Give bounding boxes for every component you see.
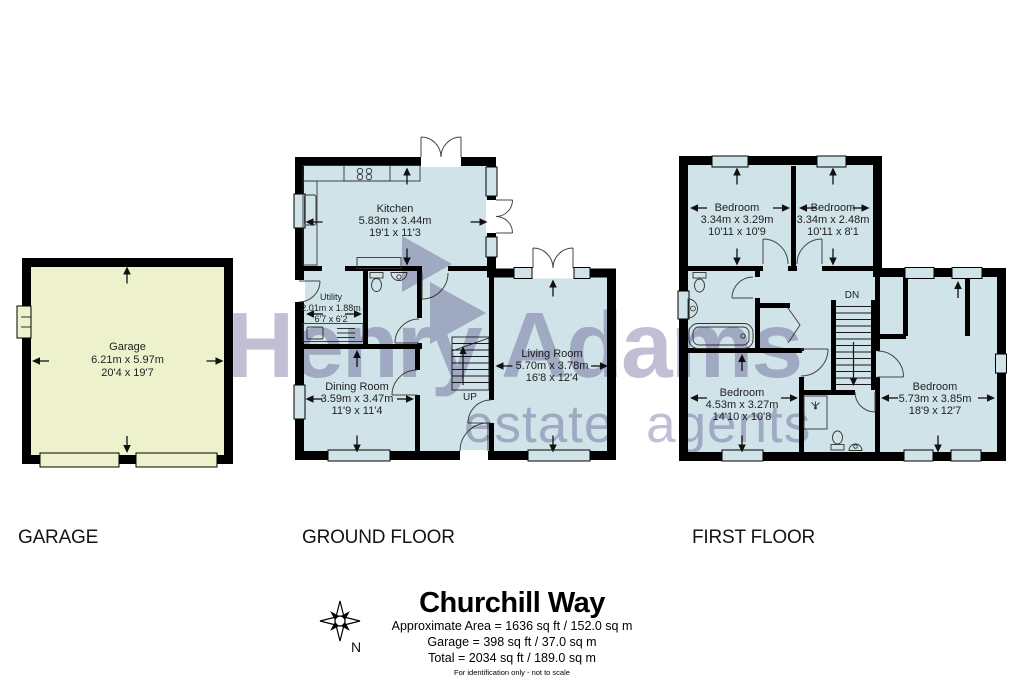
bedroom-window	[951, 450, 981, 461]
svg-text:6'7 x 6'2: 6'7 x 6'2	[315, 314, 348, 324]
ground-floor-plan: UP Kitchen 5.83m x 3.44m 19'1 x 11'3 U	[294, 137, 612, 461]
svg-text:Garage: Garage	[109, 341, 146, 353]
svg-text:Utility: Utility	[320, 292, 342, 302]
svg-text:3.34m x 2.48m: 3.34m x 2.48m	[797, 214, 870, 226]
kitchen-window	[486, 167, 497, 196]
svg-text:6.21m x 5.97m: 6.21m x 5.97m	[91, 354, 164, 366]
svg-text:4.53m x 3.27m: 4.53m x 3.27m	[706, 399, 779, 411]
bedroom-window	[904, 450, 933, 461]
garage-plan: Garage 6.21m x 5.97m 20'4 x 19'7	[17, 263, 229, 468]
svg-text:Kitchen: Kitchen	[377, 203, 414, 215]
svg-text:Bedroom: Bedroom	[720, 387, 765, 399]
footer: Churchill Way Approximate Area = 1636 sq…	[262, 588, 762, 677]
svg-text:5.70m x 3.78m: 5.70m x 3.78m	[516, 360, 589, 372]
dining-window	[328, 450, 390, 461]
bedroom-window	[722, 450, 763, 461]
svg-text:Bedroom: Bedroom	[811, 202, 856, 214]
svg-text:10'11 x 8'1: 10'11 x 8'1	[807, 226, 859, 238]
approximate-area-line: Approximate Area = 1636 sq ft / 152.0 sq…	[262, 619, 762, 634]
svg-text:19'1 x 11'3: 19'1 x 11'3	[369, 227, 421, 239]
disclaimer-text: For identification only - not to scale	[262, 668, 762, 677]
svg-text:Living Room: Living Room	[521, 348, 582, 360]
garage-door	[40, 453, 119, 467]
bedroom-window	[996, 354, 1007, 373]
svg-text:20'4 x 19'7: 20'4 x 19'7	[101, 367, 154, 379]
svg-text:5.73m x 3.85m: 5.73m x 3.85m	[899, 393, 972, 405]
garage-floor-label: GARAGE	[18, 528, 98, 547]
svg-text:10'11 x 10'9: 10'11 x 10'9	[708, 226, 766, 238]
kitchen-side-door	[486, 200, 497, 233]
svg-text:Bedroom: Bedroom	[715, 202, 760, 214]
dining-window	[294, 385, 305, 419]
garage-door	[136, 453, 217, 467]
living-window	[574, 268, 590, 279]
kitchen-window	[486, 237, 497, 257]
total-area-line: Total = 2034 sq ft / 189.0 sq m	[262, 651, 762, 666]
garage-area-line: Garage = 398 sq ft / 37.0 sq m	[262, 635, 762, 650]
svg-text:16'8 x 12'4: 16'8 x 12'4	[526, 372, 579, 384]
bedroom-window	[952, 268, 982, 279]
living-window	[514, 268, 532, 279]
front-door	[460, 450, 488, 461]
stairs-label: DN	[845, 290, 859, 301]
room-label-living: Living Room 5.70m x 3.78m 16'8 x 12'4	[516, 348, 589, 384]
svg-text:18'9 x 12'7: 18'9 x 12'7	[909, 405, 962, 417]
bedroom-window	[905, 268, 934, 279]
utility-back-door	[294, 280, 305, 302]
svg-text:3.59m x 3.47m: 3.59m x 3.47m	[321, 393, 394, 405]
kitchen-french-door	[421, 156, 461, 167]
floorplan-page: Garage 6.21m x 5.97m 20'4 x 19'7	[0, 0, 1024, 683]
ground-floor-label: GROUND FLOOR	[302, 528, 455, 547]
bedroom-window	[712, 156, 748, 167]
property-title: Churchill Way	[262, 588, 762, 618]
svg-text:2.01m x 1.88m: 2.01m x 1.88m	[301, 303, 361, 313]
living-french-door	[532, 268, 574, 279]
garage-window	[17, 306, 31, 338]
first-floor-plan: DN Bedroom 3.34m x 3.29m 10'11 x 10'9	[678, 156, 1007, 461]
svg-text:Bedroom: Bedroom	[913, 381, 958, 393]
svg-text:3.34m x 3.29m: 3.34m x 3.29m	[701, 214, 774, 226]
stairs-label: UP	[463, 392, 477, 403]
svg-text:Dining Room: Dining Room	[325, 381, 389, 393]
svg-text:11'9 x 11'4: 11'9 x 11'4	[332, 405, 383, 417]
bathroom-window	[678, 291, 689, 319]
first-floor-label: FIRST FLOOR	[692, 528, 815, 547]
floorplan-canvas: Garage 6.21m x 5.97m 20'4 x 19'7	[0, 0, 1024, 683]
bedroom-window	[817, 156, 846, 167]
living-window	[528, 450, 590, 461]
svg-text:5.83m x 3.44m: 5.83m x 3.44m	[359, 215, 432, 227]
svg-text:14'10 x 10'8: 14'10 x 10'8	[713, 411, 772, 423]
